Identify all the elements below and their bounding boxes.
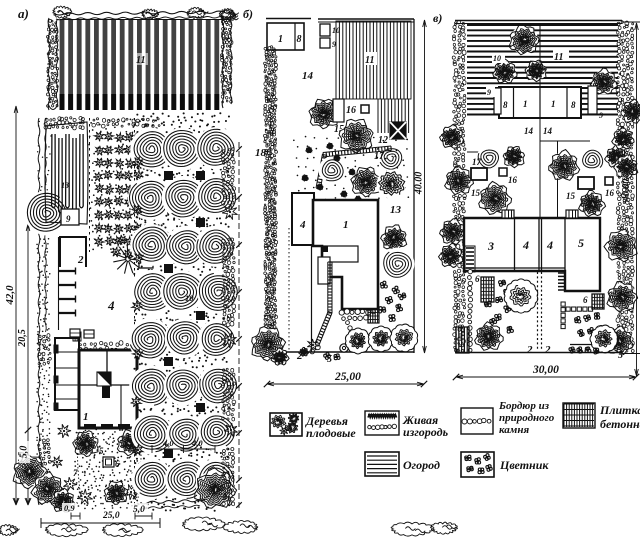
svg-text:5: 5 [99, 446, 104, 456]
svg-text:5,0: 5,0 [19, 446, 30, 459]
svg-text:в): в) [433, 11, 442, 25]
svg-text:40.00: 40.00 [414, 172, 425, 196]
svg-text:14: 14 [543, 126, 553, 136]
svg-text:плодовые: плодовые [306, 426, 356, 440]
svg-text:4: 4 [522, 238, 529, 252]
svg-text:9: 9 [487, 88, 491, 97]
svg-text:Плитка: Плитка [599, 403, 640, 417]
svg-text:11: 11 [136, 55, 145, 66]
svg-text:природного: природного [499, 412, 555, 424]
svg-text:7: 7 [73, 468, 78, 478]
svg-text:9: 9 [66, 214, 71, 224]
svg-text:1: 1 [343, 219, 349, 231]
svg-text:9: 9 [332, 40, 336, 49]
svg-text:10: 10 [185, 293, 194, 303]
svg-text:камня: камня [499, 424, 529, 436]
svg-text:2: 2 [77, 254, 84, 266]
svg-text:5: 5 [578, 236, 584, 250]
svg-text:14: 14 [524, 126, 534, 136]
svg-text:15: 15 [471, 188, 481, 198]
svg-text:11: 11 [554, 52, 563, 63]
svg-text:13: 13 [390, 204, 402, 216]
svg-text:1: 1 [523, 99, 528, 109]
svg-text:25,0: 25,0 [102, 511, 120, 521]
svg-text:4: 4 [546, 238, 553, 252]
svg-text:13: 13 [61, 181, 69, 190]
svg-text:6: 6 [475, 274, 480, 284]
svg-text:16: 16 [605, 188, 615, 198]
svg-text:8: 8 [503, 100, 508, 110]
svg-text:1: 1 [83, 411, 89, 423]
svg-text:бетонная: бетонная [600, 417, 640, 431]
svg-text:6: 6 [583, 295, 588, 305]
svg-text:3: 3 [487, 239, 494, 253]
svg-text:изгородь: изгородь [403, 425, 449, 439]
svg-text:Огород: Огород [403, 458, 440, 472]
svg-text:8: 8 [571, 100, 576, 110]
svg-text:40.00: 40.00 [621, 179, 632, 203]
svg-text:5: 5 [618, 350, 623, 361]
svg-text:4,0: 4,0 [191, 438, 203, 448]
svg-text:2: 2 [544, 344, 551, 356]
svg-text:15: 15 [566, 191, 576, 201]
svg-text:42,0: 42,0 [4, 285, 16, 306]
svg-text:б): б) [243, 7, 253, 21]
svg-text:1: 1 [551, 99, 556, 109]
svg-text:30,00: 30,00 [532, 364, 559, 376]
svg-text:Бордюр из: Бордюр из [498, 400, 550, 412]
svg-text:1: 1 [278, 34, 283, 45]
svg-text:10: 10 [493, 54, 501, 63]
svg-text:6: 6 [115, 459, 120, 469]
svg-text:14: 14 [302, 70, 314, 82]
svg-text:0,9: 0,9 [64, 503, 75, 513]
svg-text:25,00: 25,00 [334, 371, 361, 383]
svg-text:11: 11 [365, 55, 374, 66]
svg-text:Цветник: Цветник [499, 458, 549, 472]
svg-text:4: 4 [107, 298, 115, 313]
svg-text:2: 2 [526, 344, 533, 356]
svg-text:16: 16 [346, 105, 356, 116]
svg-text:18: 18 [255, 147, 267, 159]
svg-text:16: 16 [508, 175, 518, 185]
svg-text:9: 9 [599, 111, 603, 120]
svg-text:5: 5 [327, 354, 332, 365]
svg-text:17: 17 [472, 157, 482, 167]
svg-text:17: 17 [374, 151, 385, 162]
svg-text:4,0: 4,0 [162, 438, 174, 448]
svg-text:4: 4 [299, 219, 306, 231]
svg-text:а): а) [18, 6, 29, 21]
svg-text:8: 8 [297, 34, 302, 45]
svg-text:20,5: 20,5 [17, 329, 28, 348]
